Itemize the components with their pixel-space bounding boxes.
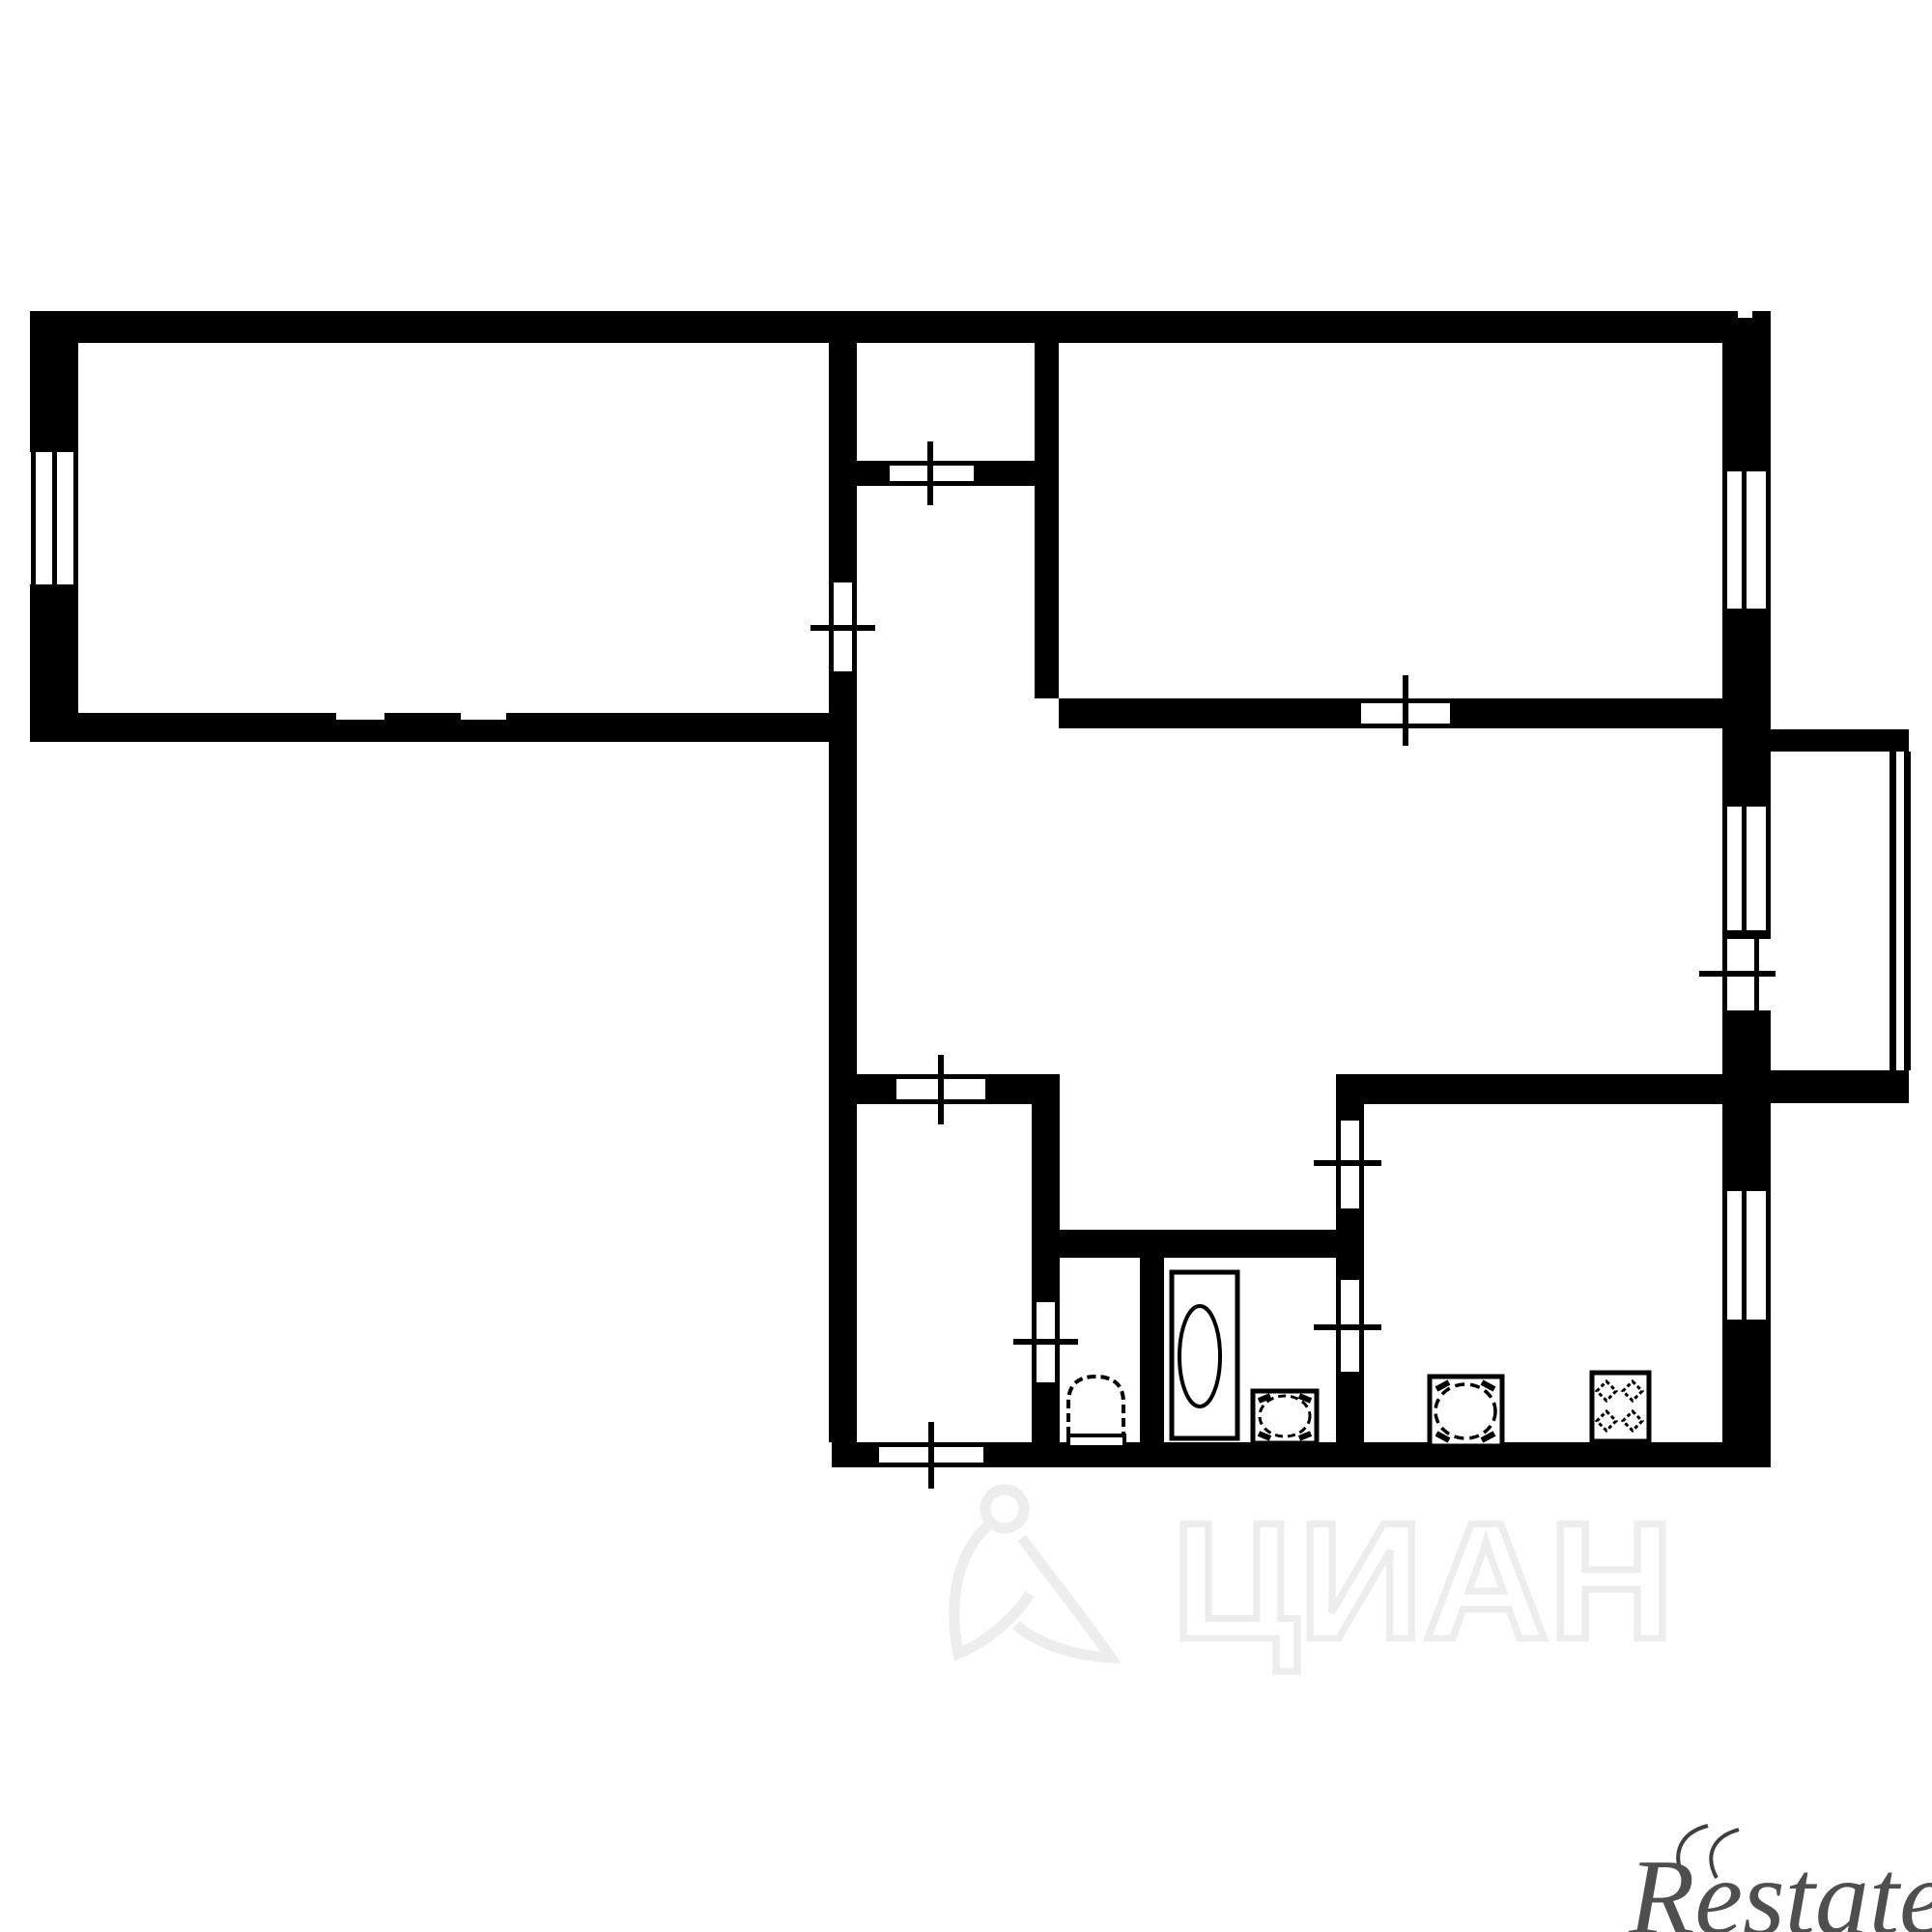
svg-text:ЦИАН: ЦИАН: [1172, 1489, 1674, 1674]
svg-text:Restate: Restate: [1628, 1838, 1932, 1932]
